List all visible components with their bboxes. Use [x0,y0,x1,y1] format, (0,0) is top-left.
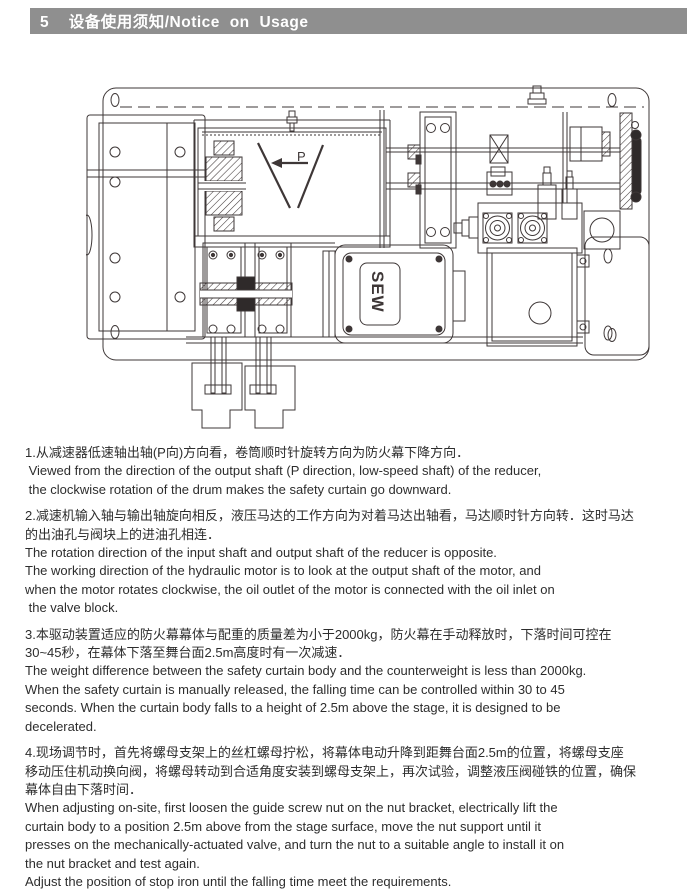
manual-page: 5 设备使用须知/Notice on Usage [0,0,687,889]
shaft-components [487,86,610,195]
text-line: When adjusting on-site, first loosen the… [25,799,673,817]
technical-drawing: P [86,85,656,437]
notice-paragraph-2: 2.减速机输入轴与输出轴旋向相反，液压马达的工作方向为对着马达出轴看，马达顺时针… [25,507,673,617]
text-line: The weight difference between the safety… [25,662,673,680]
hanging-brackets [192,337,295,428]
text-line: 移动压住机动换向阀，将螺母转动到合适角度安装到螺母支架上，再次试验，调整液压阀碰… [25,763,673,781]
text-line: 的出油孔与阀块上的进油孔相连． [25,526,673,544]
text-line: The working direction of the hydraulic m… [25,562,673,580]
notice-paragraph-4: 4.现场调节时，首先将螺母支架上的丝杠螺母拧松，将幕体电动升降到距舞台面2.5m… [25,744,673,889]
p-direction-label: P [297,149,306,164]
sew-motor: SEW [323,245,465,343]
reducer-gearbox [86,115,205,339]
text-line: 1.从减速器低速轴出轴(P向)方向看，卷筒顺时针旋转方向为防火幕下降方向． [25,444,673,462]
text-line: 2.减速机输入轴与输出轴旋向相反，液压马达的工作方向为对着马达出轴看，马达顺时针… [25,507,673,525]
text-line: When the safety curtain is manually rele… [25,681,673,699]
notices: 1.从减速器低速轴出轴(P向)方向看，卷筒顺时针旋转方向为防火幕下降方向． Vi… [25,444,673,889]
section-title: 5 设备使用须知/Notice on Usage [30,10,308,32]
text-line: curtain body to a position 2.5m above fr… [25,818,673,836]
relief-valve [562,171,577,219]
text-line: 4.现场调节时，首先将螺母支架上的丝杠螺母拧松，将幕体电动升降到距舞台面2.5m… [25,744,673,762]
text-line: 3.本驱动装置适应的防火幕幕体与配重的质量差为小于2000kg，防火幕在手动释放… [25,626,673,644]
text-line: when the motor rotates clockwise, the oi… [25,581,673,599]
hydraulic-valve-block [454,167,620,253]
right-mounting-plate [585,237,649,355]
manual-release-lever [620,113,641,209]
text-line: presses on the mechanically-actuated val… [25,836,673,854]
text-line: decelerated. [25,718,673,736]
text-line: Viewed from the direction of the output … [25,462,673,480]
text-line: seconds. When the curtain body falls to … [25,699,673,717]
drive-unit-assembly-drawing: P [86,85,656,437]
text-line: Adjust the position of stop iron until t… [25,873,673,889]
text-line: the clockwise rotation of the drum makes… [25,481,673,499]
text-line: the nut bracket and test again. [25,855,673,873]
text-line: the valve block. [25,599,673,617]
bearing-pedestal-plate [408,112,456,248]
text-line: 幕体自由下落时间． [25,781,673,799]
section-header-bar: 5 设备使用须知/Notice on Usage [30,8,687,34]
hanging-bracket [245,366,295,428]
motor-brand-label: SEW [368,271,387,313]
notice-paragraph-3: 3.本驱动装置适应的防火幕幕体与配重的质量差为小于2000kg，防火幕在手动释放… [25,626,673,736]
hanging-bracket [192,363,242,428]
brake-assembly [200,243,335,337]
text-line: 30~45秒，在幕体下落至舞台面2.5m高度时有一次减速． [25,644,673,662]
text-line: The rotation direction of the input shaf… [25,544,673,562]
directional-valve [538,167,556,219]
notice-paragraph-1: 1.从减速器低速轴出轴(P向)方向看，卷筒顺时针旋转方向为防火幕下降方向． Vi… [25,444,673,499]
oil-tank [487,248,589,346]
